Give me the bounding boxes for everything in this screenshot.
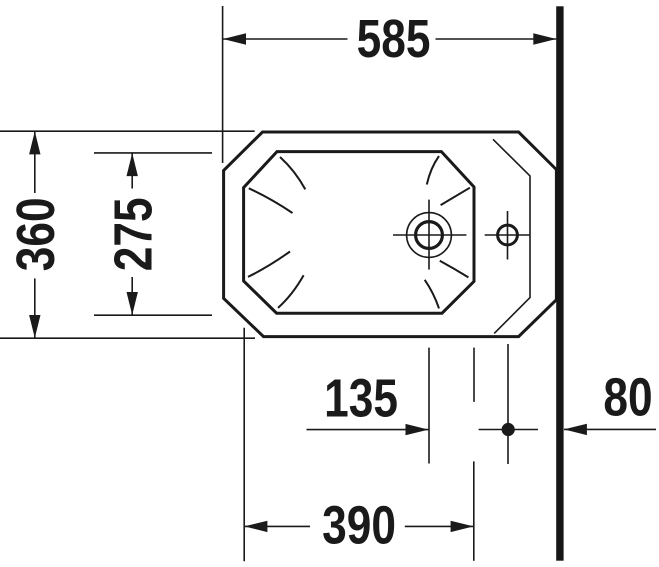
svg-text:360: 360 [6,197,66,271]
svg-text:135: 135 [324,368,398,428]
svg-text:275: 275 [103,197,163,271]
svg-text:390: 390 [322,495,396,555]
svg-text:585: 585 [357,9,431,69]
svg-text:80: 80 [603,367,652,427]
